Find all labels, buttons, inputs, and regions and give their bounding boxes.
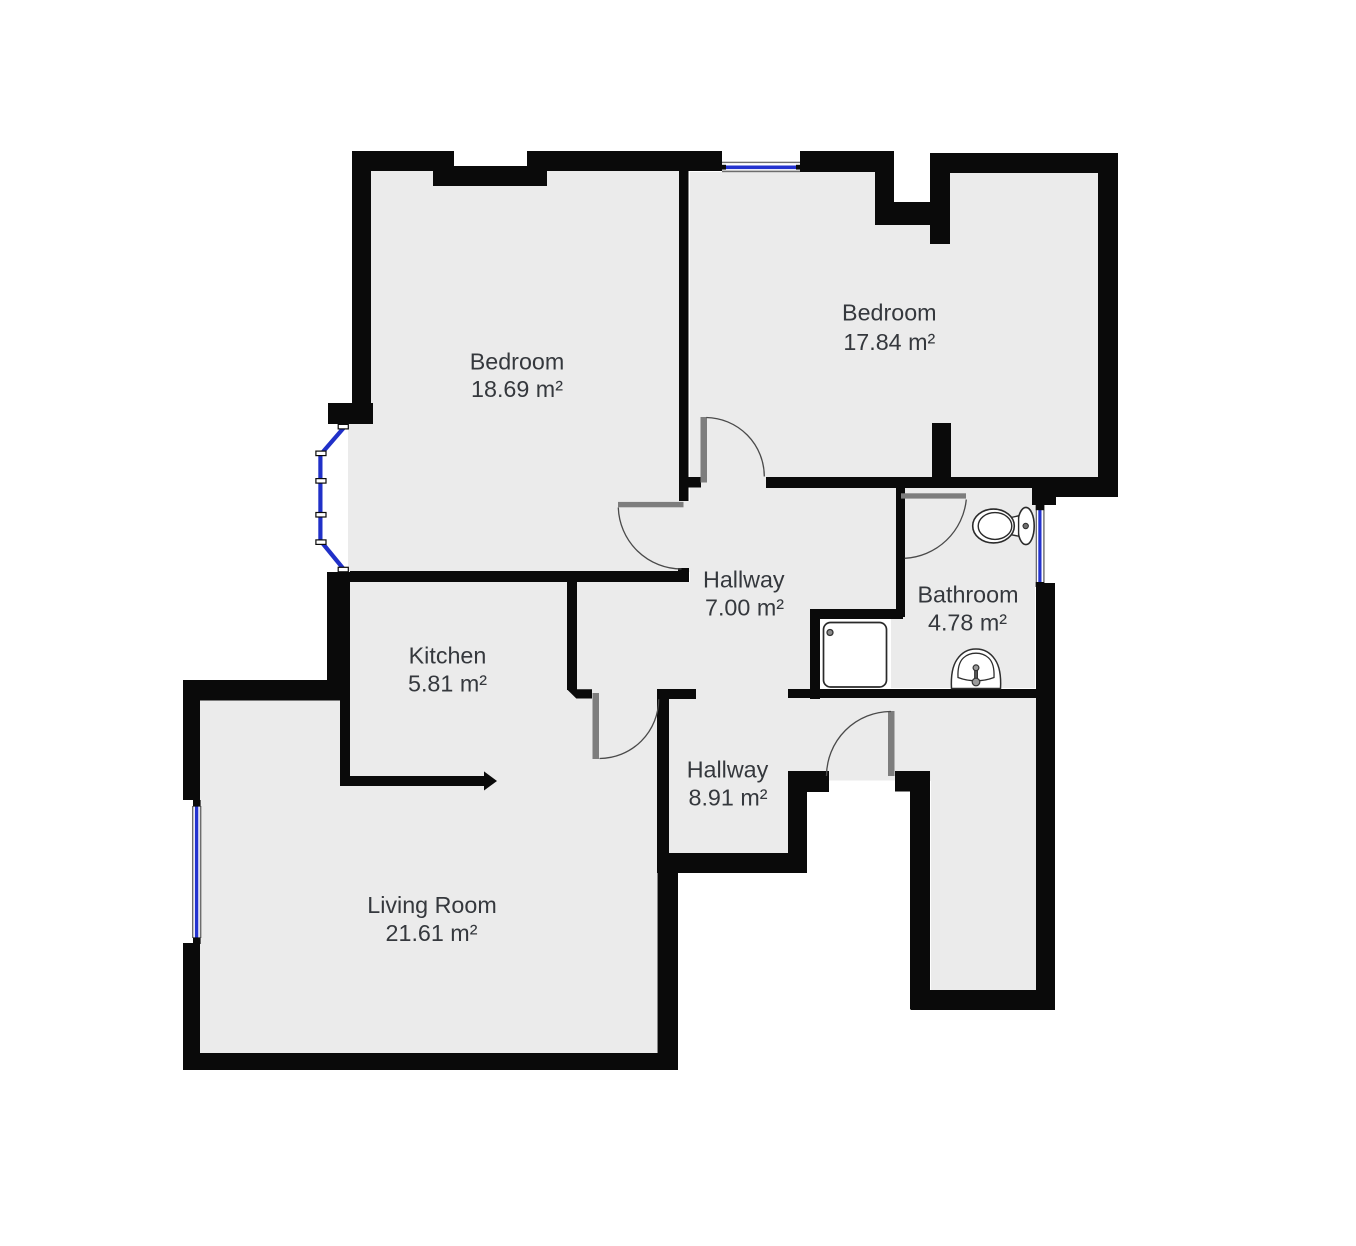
svg-text:Kitchen: Kitchen (409, 643, 487, 669)
svg-text:21.61 m²: 21.61 m² (386, 920, 478, 946)
svg-text:Living Room: Living Room (367, 892, 497, 918)
svg-text:5.81 m²: 5.81 m² (408, 671, 487, 697)
svg-text:4.78 m²: 4.78 m² (928, 610, 1007, 636)
svg-text:Bathroom: Bathroom (917, 582, 1018, 608)
svg-text:Bedroom: Bedroom (842, 300, 937, 326)
svg-text:7.00 m²: 7.00 m² (705, 595, 784, 621)
svg-text:18.69 m²: 18.69 m² (471, 376, 563, 402)
svg-text:Hallway: Hallway (687, 757, 769, 783)
svg-text:17.84 m²: 17.84 m² (843, 329, 935, 355)
svg-text:Bedroom: Bedroom (470, 349, 565, 375)
svg-text:Hallway: Hallway (703, 567, 785, 593)
svg-text:8.91 m²: 8.91 m² (689, 785, 768, 811)
